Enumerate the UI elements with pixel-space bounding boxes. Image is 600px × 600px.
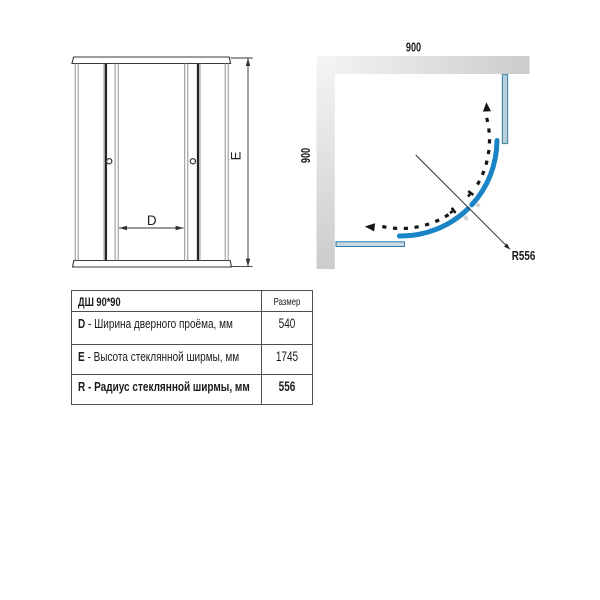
svg-text:E: E (229, 151, 244, 160)
svg-text:900: 900 (299, 148, 313, 163)
svg-text:D: D (147, 213, 157, 228)
svg-text:900: 900 (406, 41, 421, 55)
svg-text:R556: R556 (512, 249, 536, 263)
